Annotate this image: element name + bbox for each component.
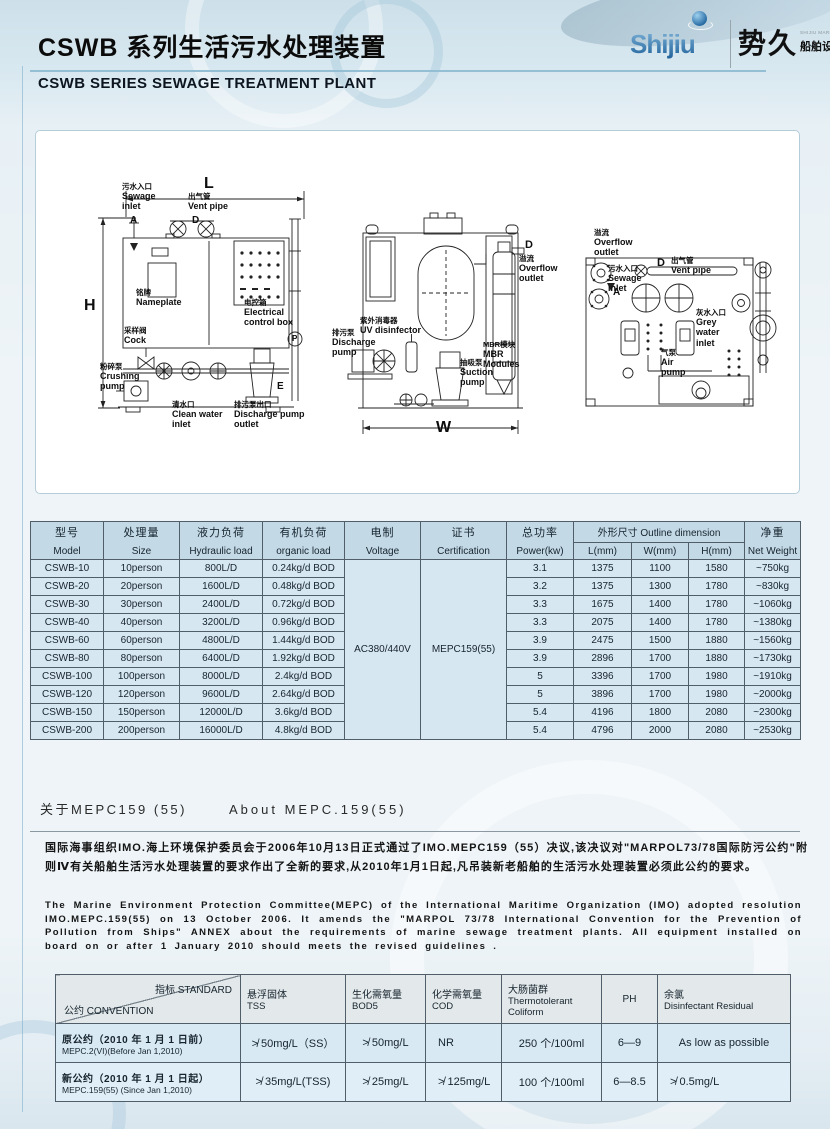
cell-tss: ≯ 50mg/L（SS） <box>241 1024 346 1063</box>
standards-header-row: 指标 STANDARD公约 CONVENTION 悬浮固体TSS 生化需氧量BO… <box>56 975 791 1024</box>
cell-power: 3.9 <box>507 632 574 650</box>
cell-h: 1980 <box>689 668 745 686</box>
cell-w: 1300 <box>632 578 689 596</box>
cell-power: 3.3 <box>507 614 574 632</box>
col-power: 总功率Power(kw) <box>507 522 574 560</box>
cell-coliform: 250 个/100ml <box>502 1024 602 1063</box>
cell-l: 2896 <box>574 650 632 668</box>
cell-model: CSWB-150 <box>31 704 104 722</box>
cell-bod: ≯ 25mg/L <box>346 1063 426 1102</box>
cell-power: 5.4 <box>507 704 574 722</box>
cell-h: 2080 <box>689 704 745 722</box>
col-coliform: 大肠菌群Thermotolerant Coliform <box>502 975 602 1024</box>
label-overflow-outlet: 溢流Overflow outlet <box>519 255 571 284</box>
cell-model: CSWB-200 <box>31 722 104 740</box>
mepc-paragraph-en: The Marine Environment Protection Commit… <box>45 899 802 953</box>
cell-weight: ~1910kg <box>745 668 801 686</box>
cell-h: 2080 <box>689 722 745 740</box>
cell-w: 1700 <box>632 668 689 686</box>
cell-w: 1800 <box>632 704 689 722</box>
cell-size: 60person <box>104 632 180 650</box>
cell-power: 5 <box>507 668 574 686</box>
brand-name: Shijiu <box>630 29 695 60</box>
cell-tss: ≯ 35mg/L(TSS) <box>241 1063 346 1102</box>
cell-size: 200person <box>104 722 180 740</box>
cell-weight: ~2530kg <box>745 722 801 740</box>
cell-voltage: AC380/440V <box>345 560 421 740</box>
cell-l: 2475 <box>574 632 632 650</box>
cell-convention: 新公约（2010 年 1 月 1 日起）MEPC.159(55) (Since … <box>56 1063 241 1102</box>
cell-organic: 0.24kg/d BOD <box>263 560 345 578</box>
cell-power: 3.3 <box>507 596 574 614</box>
label-electrical-control-box: 电控箱Electrical control box <box>244 299 300 328</box>
cell-h: 1980 <box>689 686 745 704</box>
cell-load: 4800L/D <box>180 632 263 650</box>
cell-load: 12000L/D <box>180 704 263 722</box>
cell-l: 2075 <box>574 614 632 632</box>
cell-model: CSWB-30 <box>31 596 104 614</box>
cell-power: 3.1 <box>507 560 574 578</box>
cell-model: CSWB-10 <box>31 560 104 578</box>
cell-organic: 4.8kg/d BOD <box>263 722 345 740</box>
cell-weight: ~2300kg <box>745 704 801 722</box>
cell-weight: ~830kg <box>745 578 801 596</box>
col-organic-load: 有机负荷organic load <box>263 522 345 560</box>
standards-table: 指标 STANDARD公约 CONVENTION 悬浮固体TSS 生化需氧量BO… <box>55 974 791 1102</box>
cell-w: 1400 <box>632 596 689 614</box>
cell-l: 3896 <box>574 686 632 704</box>
cell-load: 3200L/D <box>180 614 263 632</box>
cell-w: 1400 <box>632 614 689 632</box>
col-tss: 悬浮固体TSS <box>241 975 346 1024</box>
cell-l: 1675 <box>574 596 632 614</box>
label-discharge-pump-outlet: 排污泵出口Discharge pump outlet <box>234 401 314 430</box>
corner-cell: 指标 STANDARD公约 CONVENTION <box>56 975 241 1024</box>
section-heading: 关于MEPC159 (55)About MEPC.159(55) <box>40 799 407 818</box>
cell-w: 1500 <box>632 632 689 650</box>
col-model: 型号Model <box>31 522 104 560</box>
col-ph: PH <box>602 975 658 1024</box>
cell-h: 1780 <box>689 614 745 632</box>
cell-coliform: 100 个/100ml <box>502 1063 602 1102</box>
section-heading-en: About MEPC.159(55) <box>229 802 407 817</box>
cell-weight: ~1560kg <box>745 632 801 650</box>
cell-l: 4796 <box>574 722 632 740</box>
mepc-paragraph-zh: 国际海事组织IMO.海上环境保护委员会于2006年10月13日正式通过了IMO.… <box>45 839 808 877</box>
cell-h: 1880 <box>689 650 745 668</box>
label-vent-pipe: 出气管Vent pipe <box>188 193 258 211</box>
cell-model: CSWB-60 <box>31 632 104 650</box>
section-heading-zh: 关于MEPC159 (55) <box>40 802 187 817</box>
diagram-panel: 污水入口Sewage inlet 出气管Vent pipe A D L H 铭牌… <box>35 130 800 494</box>
cell-size: 30person <box>104 596 180 614</box>
page-subtitle: CSWB SERIES SEWAGE TREATMENT PLANT <box>38 75 376 92</box>
cell-power: 5 <box>507 686 574 704</box>
cell-power: 3.2 <box>507 578 574 596</box>
spec-row: CSWB-1010person800L/D0.24kg/d BODAC380/4… <box>31 560 801 578</box>
cell-weight: ~1060kg <box>745 596 801 614</box>
cell-ph: 6—9 <box>602 1024 658 1063</box>
label-cock: 采样阀Cock <box>124 327 164 345</box>
col-outline-dimension: 外形尺寸 Outline dimension <box>574 522 745 543</box>
page-title: CSWB 系列生活污水处理装置 <box>38 28 386 64</box>
cell-size: 20person <box>104 578 180 596</box>
cell-organic: 0.48kg/d BOD <box>263 578 345 596</box>
cell-load: 2400L/D <box>180 596 263 614</box>
cell-organic: 2.4kg/d BOD <box>263 668 345 686</box>
left-accent-line <box>22 66 23 1112</box>
cell-load: 1600L/D <box>180 578 263 596</box>
dim-width: W <box>436 419 451 437</box>
cell-organic: 0.72kg/d BOD <box>263 596 345 614</box>
cell-weight: ~1380kg <box>745 614 801 632</box>
col-cod: 化学需氧量COD <box>426 975 502 1024</box>
cell-load: 9600L/D <box>180 686 263 704</box>
cell-size: 10person <box>104 560 180 578</box>
label-air-pump: 气泵Air pump <box>661 349 695 378</box>
col-disinfectant-residual: 余氯Disinfectant Residual <box>658 975 791 1024</box>
mark-d: D <box>192 215 199 226</box>
spec-table: 型号Model 处理量Size 液力负荷Hydraulic load 有机负荷o… <box>30 521 801 740</box>
cell-organic: 0.96kg/d BOD <box>263 614 345 632</box>
cell-model: CSWB-20 <box>31 578 104 596</box>
cell-organic: 3.6kg/d BOD <box>263 704 345 722</box>
cell-w: 1100 <box>632 560 689 578</box>
pump-p-mark: P <box>292 334 297 343</box>
cell-l: 1375 <box>574 560 632 578</box>
cell-size: 100person <box>104 668 180 686</box>
catalog-page: CSWB 系列生活污水处理装置 CSWB SERIES SEWAGE TREAT… <box>0 0 830 1129</box>
label-nameplate: 铭牌Nameplate <box>136 289 196 307</box>
col-l: L(mm) <box>574 543 632 560</box>
cell-organic: 2.64kg/d BOD <box>263 686 345 704</box>
cell-load: 16000L/D <box>180 722 263 740</box>
logo-divider <box>730 20 731 68</box>
label-grey-water-inlet: 灰水入口Grey water inlet <box>696 309 740 348</box>
col-size: 处理量Size <box>104 522 180 560</box>
cell-weight: ~1730kg <box>745 650 801 668</box>
brand-tagline: SHIJIU MARINE EQUIPT <box>800 30 830 35</box>
col-hydraulic-load: 液力负荷Hydraulic load <box>180 522 263 560</box>
cell-residual: As low as possible <box>658 1024 791 1063</box>
mark-a: A <box>613 287 620 298</box>
cell-model: CSWB-80 <box>31 650 104 668</box>
label-mbr-modules: MBR模块MBR Modules <box>483 341 535 370</box>
section-divider <box>30 831 800 832</box>
cell-model: CSWB-100 <box>31 668 104 686</box>
label-sewage-inlet: 污水入口Sewage inlet <box>122 183 170 212</box>
cell-h: 1580 <box>689 560 745 578</box>
cell-l: 3396 <box>574 668 632 686</box>
brand-name-zh: 势久 <box>738 22 798 62</box>
cell-l: 4196 <box>574 704 632 722</box>
brand-logo: Shijiu 势久 SHIJIU MARINE EQUIPT 船舶设备 <box>630 12 820 74</box>
col-certification: 证书Certification <box>421 522 507 560</box>
col-voltage: 电制Voltage <box>345 522 421 560</box>
cell-weight: ~750kg <box>745 560 801 578</box>
cell-organic: 1.44kg/d BOD <box>263 632 345 650</box>
col-h: H(mm) <box>689 543 745 560</box>
standards-row: 新公约（2010 年 1 月 1 日起）MEPC.159(55) (Since … <box>56 1063 791 1102</box>
cell-residual: ≯ 0.5mg/L <box>658 1063 791 1102</box>
cell-size: 120person <box>104 686 180 704</box>
brand-sub-zh: 船舶设备 <box>800 38 830 54</box>
cell-h: 1880 <box>689 632 745 650</box>
cell-h: 1780 <box>689 578 745 596</box>
col-net-weight: 净重Net Weight <box>745 522 801 560</box>
cell-h: 1780 <box>689 596 745 614</box>
mark-a: A <box>130 215 137 226</box>
cell-size: 80person <box>104 650 180 668</box>
cell-bod: ≯ 50mg/L <box>346 1024 426 1063</box>
cell-ph: 6—8.5 <box>602 1063 658 1102</box>
spec-header-row: 型号Model 处理量Size 液力负荷Hydraulic load 有机负荷o… <box>31 522 801 543</box>
cell-load: 6400L/D <box>180 650 263 668</box>
col-bod5: 生化需氧量BOD5 <box>346 975 426 1024</box>
cell-convention: 原公约（2010 年 1 月 1 日前）MEPC.2(VI)(Before Ja… <box>56 1024 241 1063</box>
cell-w: 1700 <box>632 650 689 668</box>
cell-power: 3.9 <box>507 650 574 668</box>
mark-d: D <box>657 257 665 269</box>
cell-size: 40person <box>104 614 180 632</box>
cell-model: CSWB-120 <box>31 686 104 704</box>
cell-power: 5.4 <box>507 722 574 740</box>
label-clean-water-inlet: 清水口Clean water inlet <box>172 401 226 430</box>
label-crushing-pump: 粉碎泵Crushing pump <box>100 363 144 392</box>
standards-row: 原公约（2010 年 1 月 1 日前）MEPC.2(VI)(Before Ja… <box>56 1024 791 1063</box>
mark-e: E <box>277 381 284 392</box>
col-w: W(mm) <box>632 543 689 560</box>
cell-model: CSWB-40 <box>31 614 104 632</box>
cell-weight: ~2000kg <box>745 686 801 704</box>
label-uv-disinfector: 紫外消毒器UV disinfector <box>360 317 426 335</box>
cell-cod: ≯ 125mg/L <box>426 1063 502 1102</box>
mark-d: D <box>525 239 533 251</box>
cell-w: 1700 <box>632 686 689 704</box>
dim-length: L <box>204 175 214 193</box>
cell-load: 8000L/D <box>180 668 263 686</box>
cell-certification: MEPC159(55) <box>421 560 507 740</box>
label-vent-pipe: 出气管Vent pipe <box>671 257 731 275</box>
cell-l: 1375 <box>574 578 632 596</box>
label-overflow-outlet: 溢流Overflow outlet <box>594 229 650 258</box>
cell-size: 150person <box>104 704 180 722</box>
cell-w: 2000 <box>632 722 689 740</box>
cell-organic: 1.92kg/d BOD <box>263 650 345 668</box>
dim-height: H <box>84 297 96 315</box>
cell-load: 800L/D <box>180 560 263 578</box>
cell-cod: NR <box>426 1024 502 1063</box>
